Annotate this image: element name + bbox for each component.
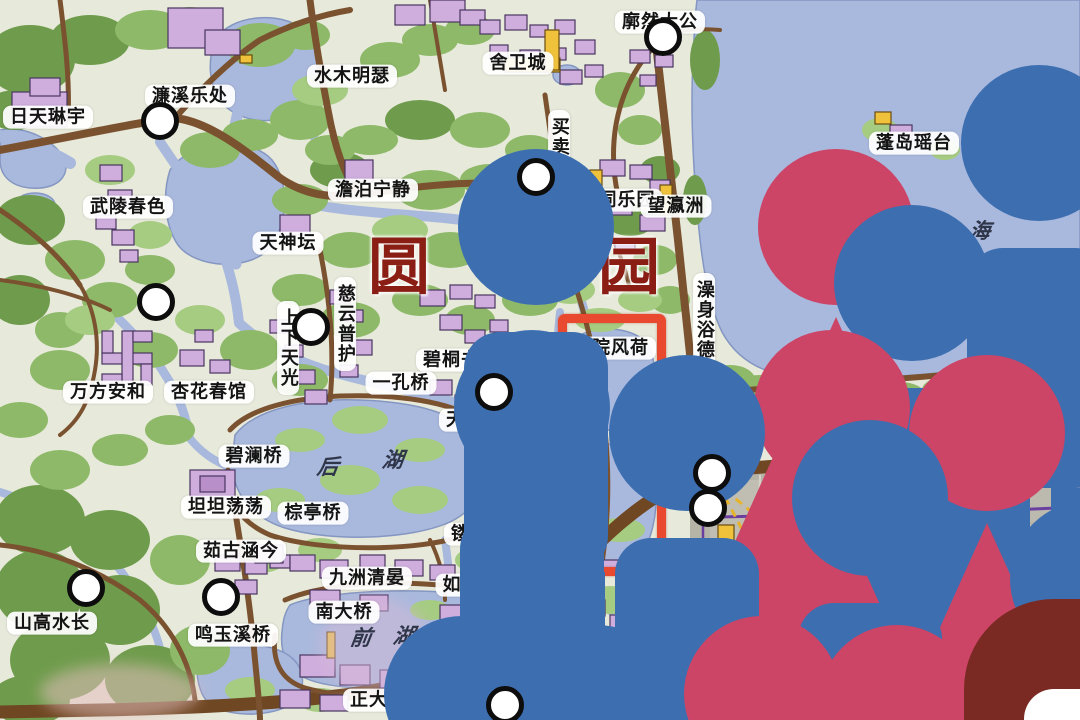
highlight-rectangle: [558, 314, 666, 576]
right-edge-park: [1060, 562, 1080, 720]
yuanmingyuan-tourist-map: 圆明园 日天琳宇濂溪乐处武陵春色水木明瑟舍卫城廓然大公坐石临流同乐园望瀛洲蓬岛瑶…: [0, 0, 1080, 720]
lake-fuhai: [692, 0, 1080, 378]
map-title-char: 明: [483, 237, 545, 299]
wanfang-anhe-swastika: [102, 331, 152, 385]
map-title: 圆明园: [368, 234, 660, 302]
map-title-char: 圆: [368, 237, 430, 299]
map-artwork: [0, 0, 1080, 720]
map-title-char: 园: [598, 237, 660, 299]
